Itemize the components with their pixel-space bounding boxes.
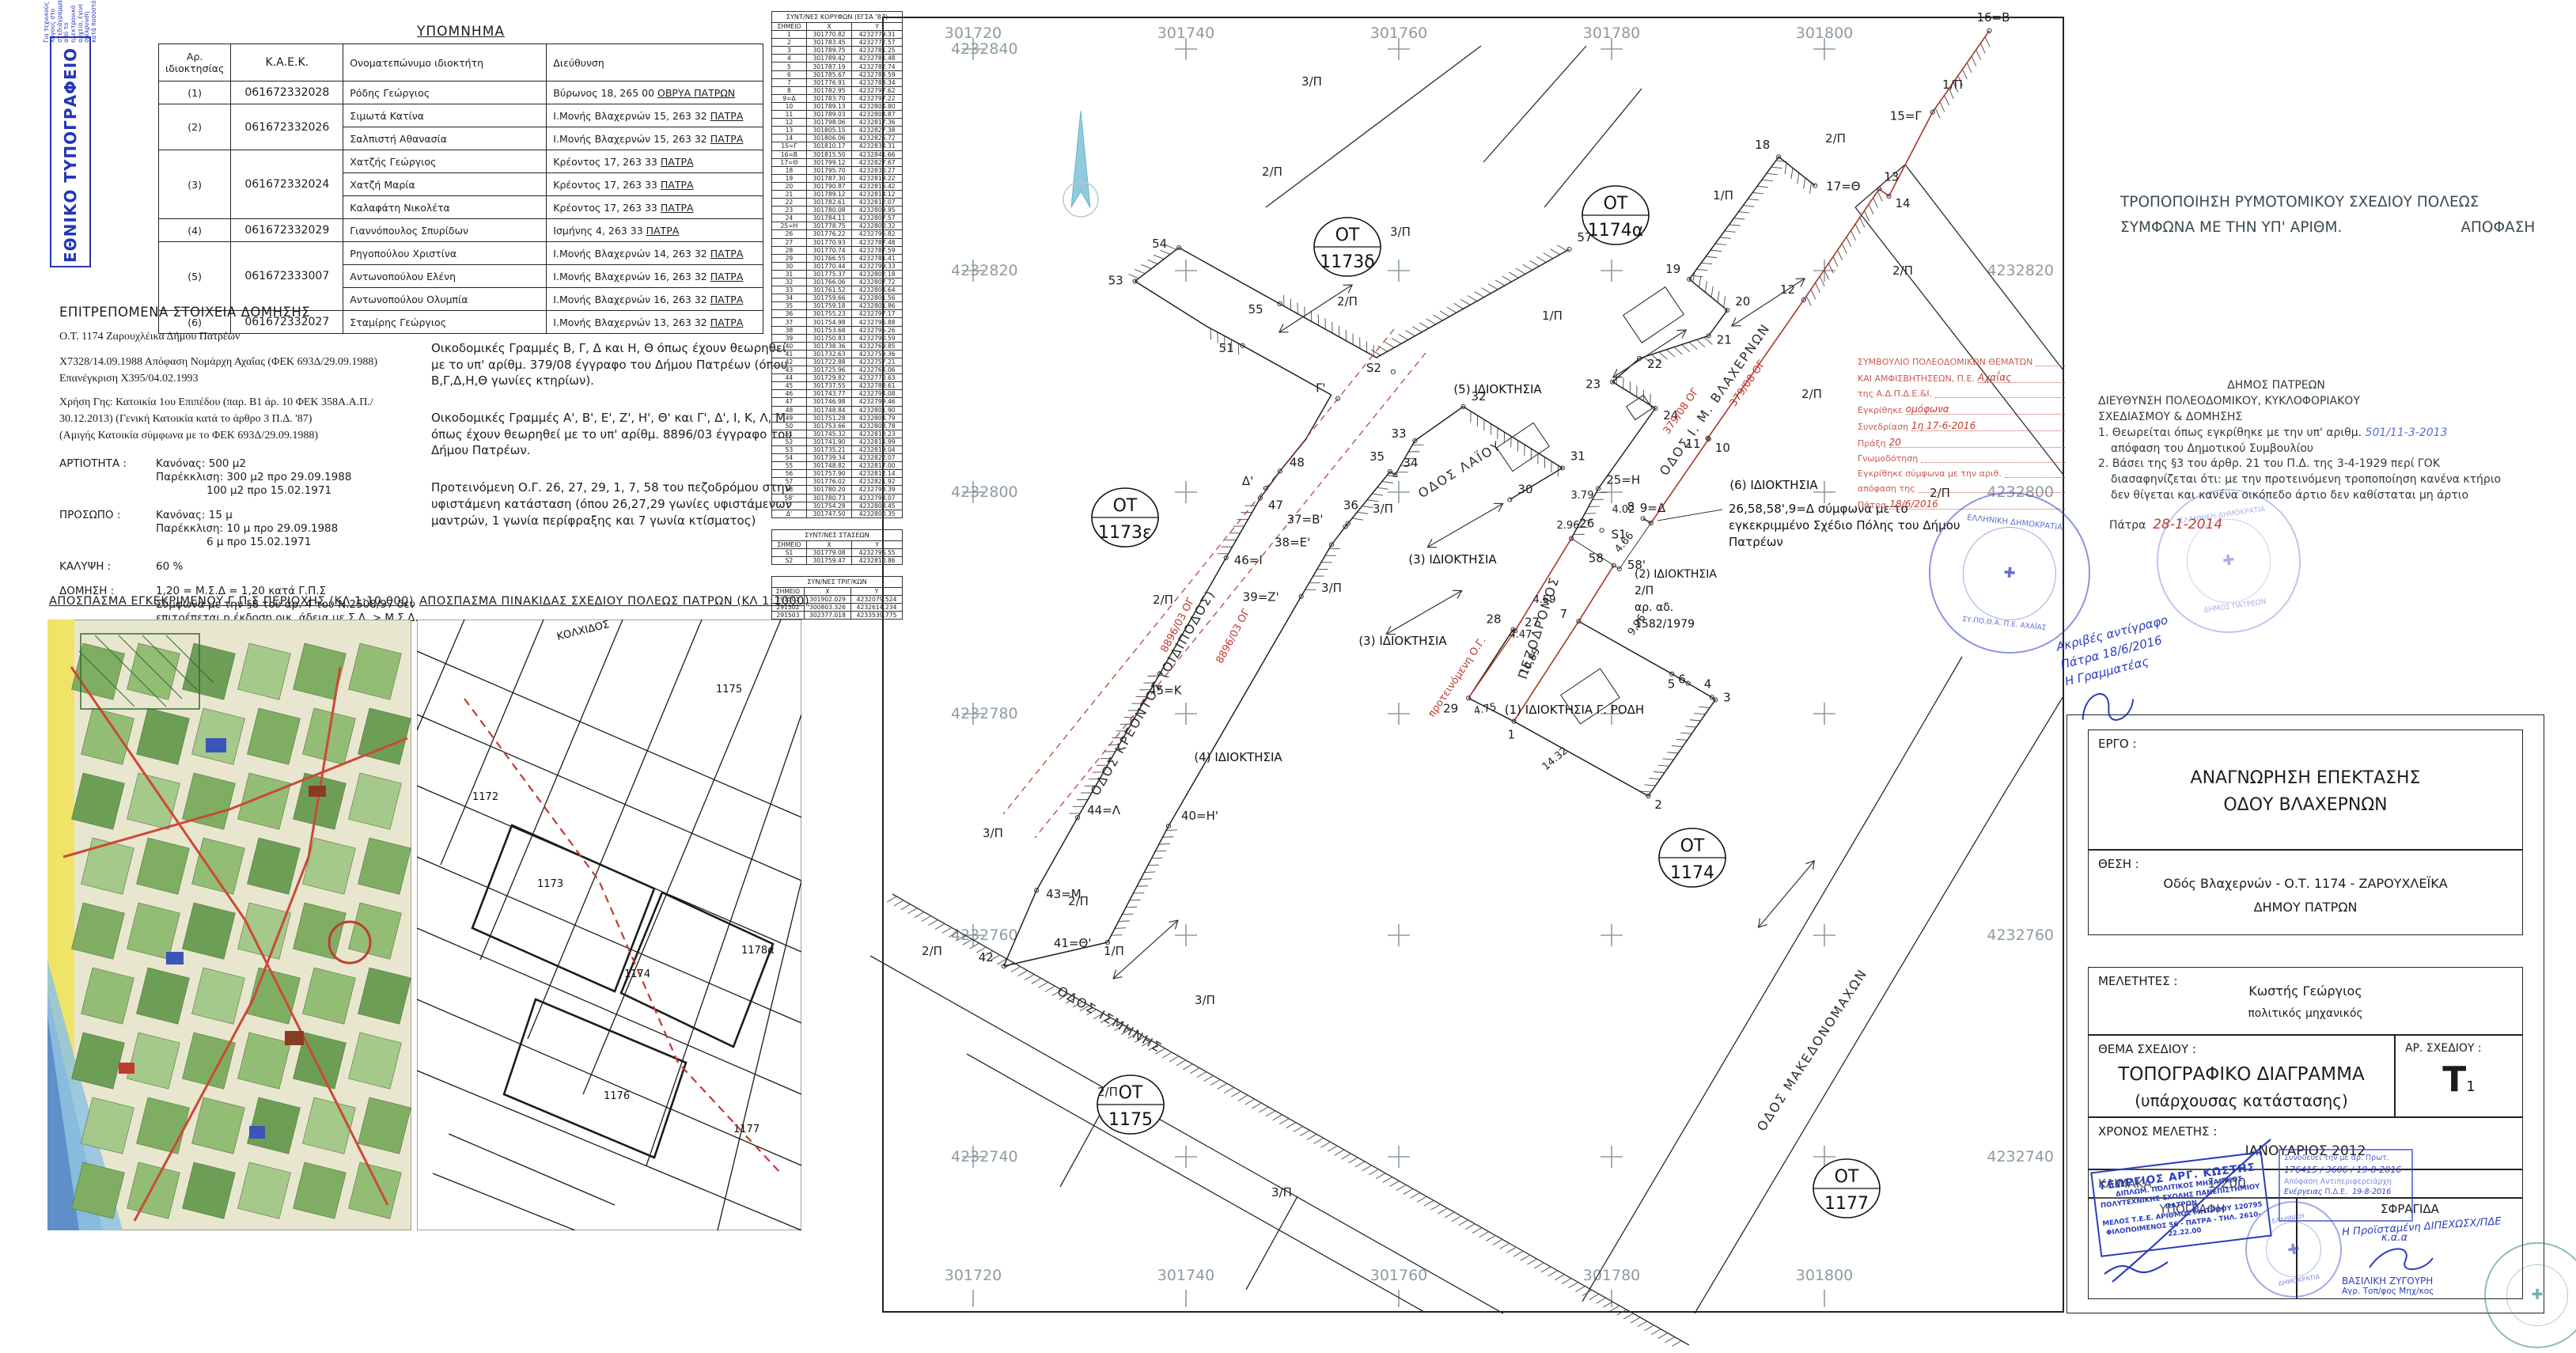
hatch-tick: [1806, 296, 1811, 306]
owners-legend-table: Αρ. ιδιοκτησίαςΚ.Α.Ε.Κ.Ονοματεπώνυμο ιδι…: [158, 44, 763, 334]
coords-row: 19301787.304232819.22: [772, 174, 903, 182]
ar-sxediou-box: ΑΡ. ΣΧΕΔΙΟΥ :Τ1: [2395, 1035, 2523, 1117]
patras-item1: 1. Θεωρείται όπως εγκρίθηκε με την υπ' α…: [2098, 426, 2541, 442]
hatch-tick: [887, 896, 896, 902]
hatch-tick: [1335, 1150, 1344, 1155]
coords-cell: 4232797.62: [852, 86, 903, 94]
coords-row: 58301780.204232793.39: [772, 486, 903, 494]
parcel2-label: 1582/1979: [1635, 618, 1695, 631]
coords-cell: 30: [772, 262, 807, 270]
coords-cell: 301748.84: [806, 406, 852, 414]
coords-cell: 4232826.72: [852, 135, 903, 142]
coords-cell: 301732.63: [806, 350, 852, 358]
hatch-tick: [1680, 733, 1691, 733]
street-line: [1582, 809, 1873, 1302]
hatch-tick: [1575, 1287, 1585, 1292]
vertex-coords-table: ΣΥΝΤ/ΝΕΣ ΚΟΡΥΦΩΝ (ΕΓΣΑ '87)ΣΗΜΕΙΟΧΥ13017…: [771, 11, 903, 518]
hatch-tick: [1465, 1224, 1475, 1230]
hatch-tick: [1509, 272, 1518, 278]
drawing-number: Τ1: [2396, 1059, 2522, 1100]
coords-cell: 291501: [772, 596, 805, 604]
hatch-tick: [1658, 765, 1669, 766]
drawing-subject-line1: ΤΟΠΟΓΡΑΦΙΚΟ ΔΙΑΓΡΑΜΜΑ: [2089, 1064, 2394, 1085]
coords-cell: 4232810.86: [852, 557, 903, 565]
coords-cell: 301795.70: [806, 166, 852, 174]
vertex-label: 18: [1755, 138, 1770, 152]
hatch-tick: [1699, 276, 1701, 287]
hatch-tick: [1705, 282, 1707, 293]
coords-row: 291501301902.0294232079.524: [772, 596, 903, 604]
hatch-tick: [1011, 967, 1021, 972]
zone-label: 1/Π: [1542, 309, 1563, 323]
coords-cell: 301738.36: [806, 342, 852, 350]
vertex-label: 12: [1780, 282, 1795, 297]
coords-row: 26301776.224232795.82: [772, 230, 903, 238]
hatch-tick: [1757, 186, 1768, 187]
coords-cell: Γ': [772, 502, 807, 510]
coords-header: Χ: [806, 540, 852, 548]
coords-cell: 4232816.42: [852, 182, 903, 190]
vertex-marker: [1987, 28, 1991, 32]
hatch-tick: [1706, 256, 1717, 257]
measurement-label: 4.59: [1533, 594, 1556, 606]
hatch-tick: [1638, 1321, 1647, 1327]
coords-cell: 19: [772, 174, 807, 182]
coords-row: 30301770.444232799.33: [772, 262, 903, 270]
hatch-tick: [1715, 244, 1726, 244]
patras-title: ΔΗΜΟΣ ΠΑΤΡΕΩΝ: [2146, 378, 2407, 394]
coords-cell: 301776.22: [806, 230, 852, 238]
coords-cell: 11: [772, 111, 807, 119]
coords-row: 32301766.064232807.72: [772, 279, 903, 286]
coords-cell: 48: [772, 406, 807, 414]
coords-cell: 4232793.39: [852, 486, 903, 494]
hatch-tick: [901, 904, 911, 910]
grid-northing-label: 4232820: [1987, 262, 2054, 279]
vertex-label: 4: [1704, 676, 1712, 691]
hatch-tick: [1798, 172, 1799, 184]
zone-label: 2/Π: [1097, 1085, 1118, 1099]
zone-label: 2/Π: [1801, 387, 1822, 401]
coords-cell: 4232834.31: [852, 142, 903, 150]
coords-row: 10301789.134232804.80: [772, 102, 903, 110]
stamp-row: Γνωμοδότηση: [1858, 454, 2065, 464]
coords-cell: S2: [772, 557, 807, 565]
hatch-tick: [1940, 102, 1945, 112]
spec-row: ΚΑΛΥΨΗ :60 %: [59, 560, 419, 574]
coords-cell: 301746.98: [806, 398, 852, 406]
legend-cell: Ι.Μονής Βλαχερνών 16, 263 32 ΠΑΤΡΑ: [547, 265, 763, 288]
zone-label: 3/Π: [1271, 1185, 1292, 1200]
vertex-label: 21: [1717, 332, 1732, 347]
grid-easting-label: 301800: [1796, 1267, 1854, 1284]
landuse: Χρήση Γης: Κατοικία 1ου Επιπέδου (παρ. Β…: [59, 394, 373, 444]
street-line: [1483, 46, 1586, 162]
coords-cell: 4232804.79: [852, 414, 903, 422]
coords-cell: 300803.326: [804, 604, 850, 612]
spec-row: ΠΡΟΣΩΠΟ :Κανόνας: 15 μΠαρέκκλιση: 10 μ π…: [59, 509, 419, 549]
hatch-tick: [1662, 759, 1673, 760]
hatch-tick: [1548, 1271, 1558, 1276]
hatch-tick: [1665, 1337, 1675, 1343]
coords-row: 49301751.284232804.79: [772, 414, 903, 422]
coords-cell: 4232801.56: [852, 294, 903, 302]
hatch-tick: [1025, 974, 1034, 980]
coords-cell: 4232793.07: [852, 494, 903, 502]
hatch-tick: [1649, 779, 1660, 779]
hatch-tick: [1582, 1290, 1592, 1295]
legend-cell: 061672332026: [231, 104, 343, 150]
coords-cell: 50: [772, 422, 807, 430]
hatch-tick: [1286, 1123, 1296, 1128]
grid-northing-label: 4232780: [951, 705, 1018, 722]
vertex-label: 9=Δ: [1640, 501, 1666, 515]
legend-cell: (2): [159, 104, 231, 150]
block-number-label: 1175: [1108, 1110, 1153, 1130]
parcel-boundary: [1004, 407, 1563, 966]
coords-cell: 301789.75: [806, 47, 852, 55]
emblem-icon: ✚: [2261, 1217, 2326, 1282]
hatch-tick: [1154, 255, 1164, 259]
coords-row: 39301750.834232790.59: [772, 334, 903, 342]
vertex-label: 34: [1403, 456, 1418, 470]
coords-cell: 301782.95: [806, 86, 852, 94]
vertex-label: 10: [1715, 441, 1730, 455]
hatch-tick: [1252, 1103, 1261, 1109]
coords-cell: 4232841.66: [852, 150, 903, 158]
coords-cell: 23: [772, 207, 807, 214]
drawing-subject-line2: (υπάρχουσας κατάστασης): [2089, 1091, 2394, 1110]
zone-label: 2/Π: [1153, 593, 1173, 607]
coords-cell: 46: [772, 390, 807, 398]
vertex-label: 1: [1508, 728, 1516, 742]
coords-cell: 301770.93: [806, 238, 852, 246]
coords-header: ΣΗΜΕΙΟ: [772, 588, 805, 596]
thesi-label: ΘΕΣΗ :: [2098, 857, 2139, 871]
coords-row: 22301782.614232812.07: [772, 199, 903, 207]
hatch-tick: [935, 923, 945, 929]
hatch-tick: [907, 908, 917, 914]
hatch-tick: [1711, 286, 1713, 298]
hatch-tick: [1176, 1060, 1186, 1066]
modification-note: ΤΡΟΠΟΠΟΙΗΣΗ ΡΥΜΟΤΟΜΙΚΟΥ ΣΧΕΔΙΟΥ ΠΟΛΕΩΣ Σ…: [2120, 190, 2554, 241]
coords-cell: 4232827.38: [852, 127, 903, 135]
hatch-tick: [1454, 303, 1464, 309]
hatch-tick: [1847, 237, 1851, 248]
hatch-tick: [1869, 204, 1873, 214]
hatch-tick: [1404, 1188, 1413, 1194]
coords-row: 5301787.194232782.74: [772, 63, 903, 70]
building-lines-notes: Οικοδομικές Γραμμές Β, Γ, Δ και Η, Θ όπω…: [431, 340, 794, 549]
gps-map-caption: ΑΠΟΣΠΑΣΜΑ ΕΓΚΕΚΡΙΜΕΝΟΥ Γ.Π.Σ ΠΕΡΙΟΧΗΣ (Κ…: [49, 595, 414, 608]
hatch-tick: [1369, 1169, 1378, 1175]
span-arrow-part: [1759, 861, 1815, 927]
block-number-label: 1177: [1824, 1194, 1869, 1214]
street-name-label: ΟΔΟΣ ΛΑΪΟΥ: [1415, 438, 1504, 501]
vertex-label: 53: [1108, 273, 1123, 287]
coords-cell: 301799.12: [806, 158, 852, 166]
hatch-tick: [1159, 843, 1170, 844]
coords-cell: 301770.82: [806, 31, 852, 39]
coords-row: 16=Β301815.504232841.66: [772, 150, 903, 158]
location-line1: Οδός Βλαχερνών - Ο.Τ. 1174 - ΖΑΡΟΥΧΛΕΪΚΑ: [2089, 876, 2522, 891]
stamp-row: της Α.Δ.Π.Δ.Ε.&Ι.: [1858, 389, 2065, 399]
hatch-tick: [1689, 342, 1697, 349]
hatch-tick: [1210, 1079, 1220, 1085]
hatch-tick: [1225, 1087, 1234, 1093]
hatch-tick: [1685, 726, 1696, 727]
coords-cell: 4232813.23: [852, 430, 903, 438]
coords-row: 45301737.554232783.61: [772, 382, 903, 390]
coords-cell: 301747.50: [806, 510, 852, 517]
spec-text: Κανόνας: 500 μ2Παρέκκλιση: 300 μ2 προ 29…: [156, 457, 351, 498]
hatch-tick: [1371, 350, 1381, 355]
coords-cell: 4232802.18: [852, 270, 903, 278]
measurement-label: 4.47: [1510, 629, 1532, 641]
coords-row: 55301748.824232817.00: [772, 462, 903, 470]
coords-cell: 301754.28: [806, 502, 852, 510]
coords-cell: 8: [772, 86, 807, 94]
hatch-tick: [1119, 921, 1130, 922]
zone-label: 3/Π: [1390, 225, 1411, 239]
legend-header: Αρ. ιδιοκτησίας: [159, 44, 231, 81]
legend-cell: (4): [159, 219, 231, 242]
hatch-tick: [1596, 1298, 1605, 1303]
coords-cell: 4232800.35: [852, 510, 903, 517]
table-row: (3)061672332024Χατζής ΓεώργιοςΚρέοντος 1…: [159, 150, 763, 173]
coords-cell: 39: [772, 334, 807, 342]
hatch-tick: [1128, 274, 1138, 278]
vertex-label: 48: [1290, 455, 1305, 469]
hatch-tick: [1816, 282, 1820, 293]
hatch-tick: [1699, 707, 1710, 707]
zone-label: 1/Π: [1942, 78, 1963, 92]
coords-cell: 301739.34: [806, 454, 852, 462]
vertex-label: S2: [1366, 361, 1381, 375]
hatch-tick: [1475, 292, 1484, 298]
coords-row: 8301782.954232797.62: [772, 86, 903, 94]
coords-cell: 4232819.04: [852, 445, 903, 453]
spec-text: ΠΡΟΣΩΠΟ :: [59, 509, 156, 549]
span-arrow-part: [1427, 504, 1502, 548]
coords-cell: 4232808.78: [852, 422, 903, 430]
head-signature: [2366, 1244, 2437, 1275]
map-block-label: 1176: [604, 1090, 630, 1102]
hatch-tick: [1183, 1064, 1192, 1070]
spec-text: Κανόνας: 15 μΠαρέκκλιση: 10 μ προ 29.09.…: [156, 509, 338, 549]
coords-header: Χ: [806, 23, 852, 31]
block-number-label: 1173δ: [1320, 252, 1374, 272]
project-title-line2: ΟΔΟΥ ΒΛΑΧΕΡΝΩΝ: [2089, 795, 2522, 815]
coords-cell: 4232819.22: [852, 174, 903, 182]
hatch-tick: [1279, 1119, 1289, 1124]
hatch-tick: [1724, 297, 1726, 308]
hatch-tick: [1348, 1158, 1358, 1163]
hatch-tick: [1017, 971, 1027, 976]
coords-cell: 301766.55: [806, 254, 852, 262]
hatch-tick: [1681, 345, 1689, 352]
coords-cell: 4232807.57: [852, 214, 903, 222]
hatch-tick: [1658, 1333, 1668, 1339]
hatch-tick: [1352, 518, 1363, 520]
hatch-tick: [1392, 338, 1401, 343]
hatch-tick: [1645, 785, 1656, 786]
approval-number-handwritten: 501/11-3-2013: [2366, 426, 2448, 439]
legend-header: Κ.Α.Ε.Κ.: [231, 44, 343, 81]
hatch-tick: [1855, 224, 1860, 234]
coords-row: 33301761.524232804.64: [772, 286, 903, 294]
measurement-label: 4.02: [1612, 504, 1635, 516]
property-label: (1) ΙΔΙΟΚΤΗΣΙΑ Γ. ΡΟΔΗ: [1505, 703, 1644, 717]
coords-cell: 24: [772, 214, 807, 222]
hatch-tick: [1152, 858, 1163, 858]
hatch-tick: [1654, 771, 1665, 772]
hatch-tick: [1551, 249, 1560, 255]
coords-table-title: ΣΥΝ/ΝΕΣ ΤΡΙΓ/ΚΩΝ: [772, 577, 903, 588]
legend-cell: 061672332024: [231, 150, 343, 219]
hatch-tick: [1382, 481, 1393, 483]
coords-cell: 4232781.41: [852, 254, 903, 262]
hatch-tick: [1272, 1115, 1282, 1120]
legend-cell: Κρέοντος 17, 263 33 ΠΑΤΡΑ: [547, 173, 763, 196]
coords-cell: 301806.06: [806, 135, 852, 142]
coords-row: Δ'301747.504232800.35: [772, 510, 903, 517]
project-title-line1: ΑΝΑΓΝΩΡΗΣΗ ΕΠΕΚΤΑΣΗΣ: [2089, 768, 2522, 788]
coords-cell: 17=Θ: [772, 158, 807, 166]
hatch-tick: [1534, 1263, 1544, 1268]
coords-cell: 301783.45: [806, 39, 852, 47]
grid-northing-label: 4232740: [1987, 1148, 2054, 1165]
vertex-label: 54: [1152, 237, 1167, 251]
coords-cell: 20: [772, 182, 807, 190]
vertex-label: 25=Η: [1606, 473, 1640, 487]
measurement-label: 3.79: [1571, 490, 1594, 502]
coords-cell: 5: [772, 63, 807, 70]
coords-cell: 13: [772, 127, 807, 135]
vertex-label: 47: [1268, 498, 1283, 513]
hatch-tick: [1785, 163, 1786, 174]
coords-cell: 4232783.61: [852, 382, 903, 390]
seal-line3: Απόφαση Αντιπεριφερειάρχη: [2284, 1177, 2407, 1188]
coords-row: 17=Θ301799.124232827.67: [772, 158, 903, 166]
hatch-tick: [1447, 307, 1457, 313]
street-name-label: ΟΔΟΣ ΚΡΕΟΝΤΟΣ (ΟΙΔΙΠΟΔΟΣ): [1088, 587, 1218, 798]
property-label: (5) ΙΔΙΟΚΤΗΣΙΑ: [1453, 382, 1542, 396]
zone-label: 2/Π: [1262, 165, 1282, 179]
hatch-tick: [1976, 50, 1981, 60]
zone-label: 2/Π: [1892, 263, 1913, 278]
hatch-tick: [1389, 1181, 1399, 1187]
legend-cell: 061672332029: [231, 219, 343, 242]
coords-row: 15=Γ301810.174232834.31: [772, 142, 903, 150]
coords-row: 18301795.704232830.27: [772, 166, 903, 174]
coords-row: 25=Η301778.754232800.32: [772, 222, 903, 230]
coords-row: 37301754.984232796.88: [772, 318, 903, 326]
national-printing-office-stamp: ΕΘΝΙΚΟ ΤΥΠΟΓΡΑΦΕΙΟ Για τεχνικούς λόγους …: [50, 36, 91, 267]
hatch-tick: [1362, 1165, 1372, 1171]
coords-cell: 301753.68: [806, 326, 852, 334]
coords-row: 21301789.124232814.12: [772, 190, 903, 198]
coords-cell: 1: [772, 31, 807, 39]
coords-cell: 35: [772, 302, 807, 310]
hatch-tick: [928, 920, 938, 926]
approved-line-dashed: [1035, 353, 1426, 838]
coords-cell: 27: [772, 238, 807, 246]
coords-row: 12301798.064232817.36: [772, 119, 903, 127]
hatch-tick: [1828, 263, 1833, 274]
coords-cell: 44: [772, 374, 807, 382]
legend-cell: Ι.Μονής Βλαχερνών 13, 263 32 ΠΑΤΡΑ: [547, 311, 763, 334]
vertex-label: 35: [1369, 449, 1385, 464]
coords-cell: 301782.61: [806, 199, 852, 207]
vertex-label: 58: [1589, 551, 1604, 566]
zone-label: 3/Π: [1301, 74, 1322, 89]
vertex-label: 44=Λ: [1087, 803, 1121, 817]
zone-label: 3/Π: [1373, 502, 1393, 516]
hatch-tick: [1300, 1131, 1309, 1136]
coords-cell: 4232804.80: [852, 102, 903, 110]
seal-line1: Συνοδεύει την με αρ. Πρωτ.: [2284, 1153, 2407, 1164]
vertex-label: 20: [1735, 294, 1750, 309]
coords-cell: 301761.52: [806, 286, 852, 294]
coords-cell: 4232807.72: [852, 279, 903, 286]
vertex-label: Γ': [1316, 381, 1325, 396]
block-ot-label: ΟΤ: [1680, 836, 1705, 856]
note-3: Προτεινόμενη Ο.Γ. 26, 27, 29, 1, 7, 58 τ…: [431, 479, 794, 529]
span-arrow: [1425, 499, 1505, 551]
grid-easting-label: 301760: [1370, 1267, 1428, 1284]
hatch-tick: [1115, 928, 1126, 929]
legend-header: Διεύθυνση: [547, 44, 763, 81]
hatch-tick: [1148, 865, 1159, 866]
seal-protocol-handwritten: 176415 / 3606 / 19-8-2016: [2284, 1164, 2407, 1177]
hatch-tick: [1704, 337, 1712, 344]
coords-cell: 4232796.55: [852, 548, 903, 556]
coords-cell: 4232796.88: [852, 318, 903, 326]
hatch-tick: [1720, 237, 1731, 238]
hatch-tick: [1810, 183, 1812, 194]
map-block-label: 1174: [624, 968, 650, 980]
coords-cell: 301789.03: [806, 111, 852, 119]
vertex-label: 38=Ε': [1275, 535, 1310, 549]
coords-cell: 301789.42: [806, 55, 852, 63]
block-ot-label: ΟΤ: [1335, 225, 1360, 245]
hatch-tick: [1405, 331, 1415, 336]
coords-cell: 301779.08: [806, 548, 852, 556]
coords-cell: 4232782.74: [852, 63, 903, 70]
hatch-tick: [1696, 269, 1707, 270]
coords-cell: 4232769.85: [852, 342, 903, 350]
coords-cell: 301815.50: [806, 150, 852, 158]
coords-cell: 301743.77: [806, 390, 852, 398]
legend-cell: 061672333007: [231, 242, 343, 311]
map-block-label: 1178α: [741, 945, 775, 957]
hatch-tick: [1838, 250, 1843, 260]
hatch-tick: [1307, 1134, 1316, 1139]
hatch-tick: [1328, 1146, 1337, 1151]
spec-text: ΚΑΛΥΨΗ :: [59, 560, 156, 574]
coords-cell: 301745.32: [806, 430, 852, 438]
hatch-tick: [1877, 191, 1882, 202]
coords-cell: 291503: [772, 612, 805, 620]
vertex-label: 41=Θ': [1054, 936, 1092, 950]
stamp-row: Συνεδρίαση1η 17-6-2016: [1858, 421, 2065, 432]
hatch-tick: [1424, 1200, 1434, 1206]
hatch-tick: [1631, 1317, 1640, 1323]
coords-cell: 4232757.21: [852, 358, 903, 366]
hatch-tick: [1245, 1099, 1255, 1105]
coords-cell: 31: [772, 270, 807, 278]
